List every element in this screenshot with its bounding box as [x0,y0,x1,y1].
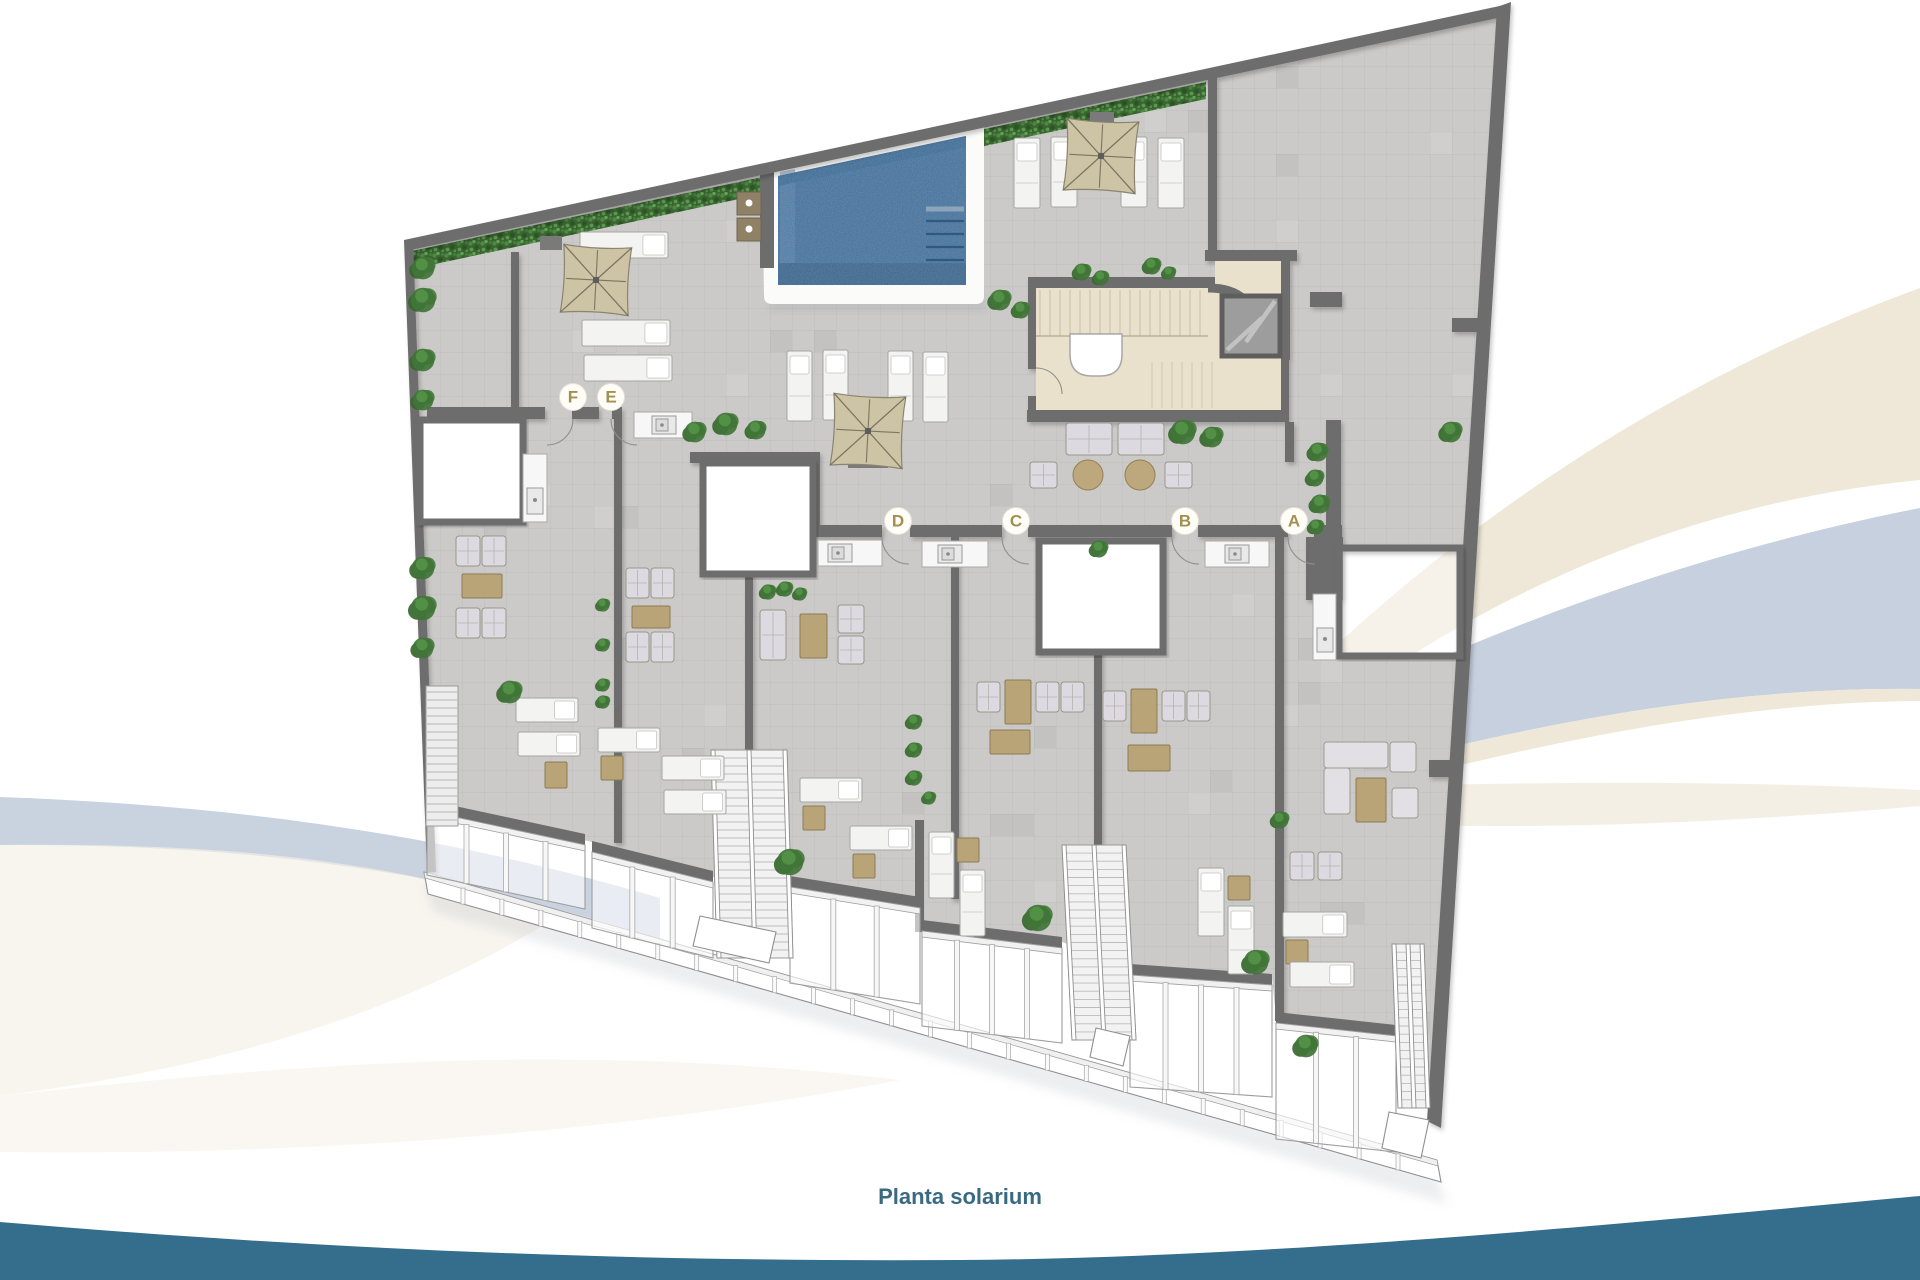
svg-text:D: D [892,512,904,531]
svg-text:F: F [568,388,578,407]
svg-text:E: E [605,388,616,407]
svg-text:B: B [1179,512,1191,531]
svg-text:C: C [1010,512,1022,531]
svg-text:Planta solarium: Planta solarium [878,1184,1042,1209]
svg-text:A: A [1288,512,1300,531]
